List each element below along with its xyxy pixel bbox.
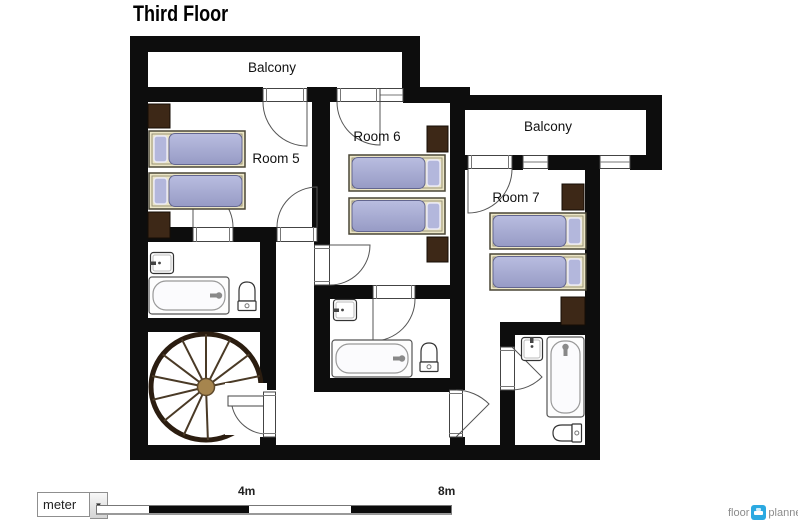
scale-bar: [96, 505, 452, 515]
wardrobe-icon: [427, 237, 448, 262]
door-icon: [277, 187, 317, 242]
bathtub-icon: [547, 337, 584, 417]
unit-value[interactable]: meter: [37, 492, 90, 517]
sink-icon: [333, 300, 357, 321]
sink-icon: [150, 253, 174, 274]
scale-segment: [97, 506, 149, 513]
wardrobe-icon: [427, 126, 448, 152]
floor-plan: Balcony Room 5 Room 6 Balcony Room 7: [0, 0, 798, 532]
room-label-room5: Room 5: [252, 151, 299, 166]
floorplanner-logo[interactable]: floor planner: [728, 505, 798, 520]
bed-icon: [490, 254, 586, 290]
toilet-icon: [238, 282, 256, 311]
room-label-room7: Room 7: [492, 190, 539, 205]
window-icon: [600, 156, 630, 169]
bathtub-icon: [149, 277, 229, 314]
door-icon: [314, 245, 370, 285]
wardrobe-icon: [148, 104, 170, 128]
logo-text-floor: floor: [728, 507, 749, 519]
room-label-balcony-right: Balcony: [524, 119, 572, 134]
room-label-balcony-left: Balcony: [248, 60, 296, 75]
bed-icon: [149, 173, 245, 209]
scale-segment: [149, 506, 249, 513]
bed-icon: [149, 131, 245, 167]
window-icon: [380, 89, 403, 102]
floorplanner-page: Third Floor: [0, 0, 798, 532]
bed-icon: [349, 155, 445, 191]
window-icon: [523, 156, 548, 169]
room-label-room6: Room 6: [353, 129, 400, 144]
door-icon: [373, 285, 415, 341]
bathtub-icon: [332, 340, 412, 377]
scale-segment: [351, 506, 451, 513]
toilet-icon: [553, 424, 582, 442]
sink-icon: [522, 337, 543, 361]
scale-label-8m: 8m: [438, 484, 455, 498]
toilet-icon: [420, 343, 438, 372]
logo-text-planner: planner: [768, 507, 798, 519]
bed-icon: [349, 198, 445, 234]
door-icon: [263, 88, 307, 146]
door-icon: [449, 390, 489, 437]
door-icon: [225, 383, 276, 437]
floorplanner-icon: [751, 505, 766, 520]
bed-icon: [490, 213, 586, 249]
wardrobe-icon: [148, 212, 170, 238]
wardrobe-icon: [561, 297, 585, 325]
wardrobe-icon: [562, 184, 584, 210]
scale-segment: [249, 506, 351, 513]
scale-label-4m: 4m: [238, 484, 255, 498]
